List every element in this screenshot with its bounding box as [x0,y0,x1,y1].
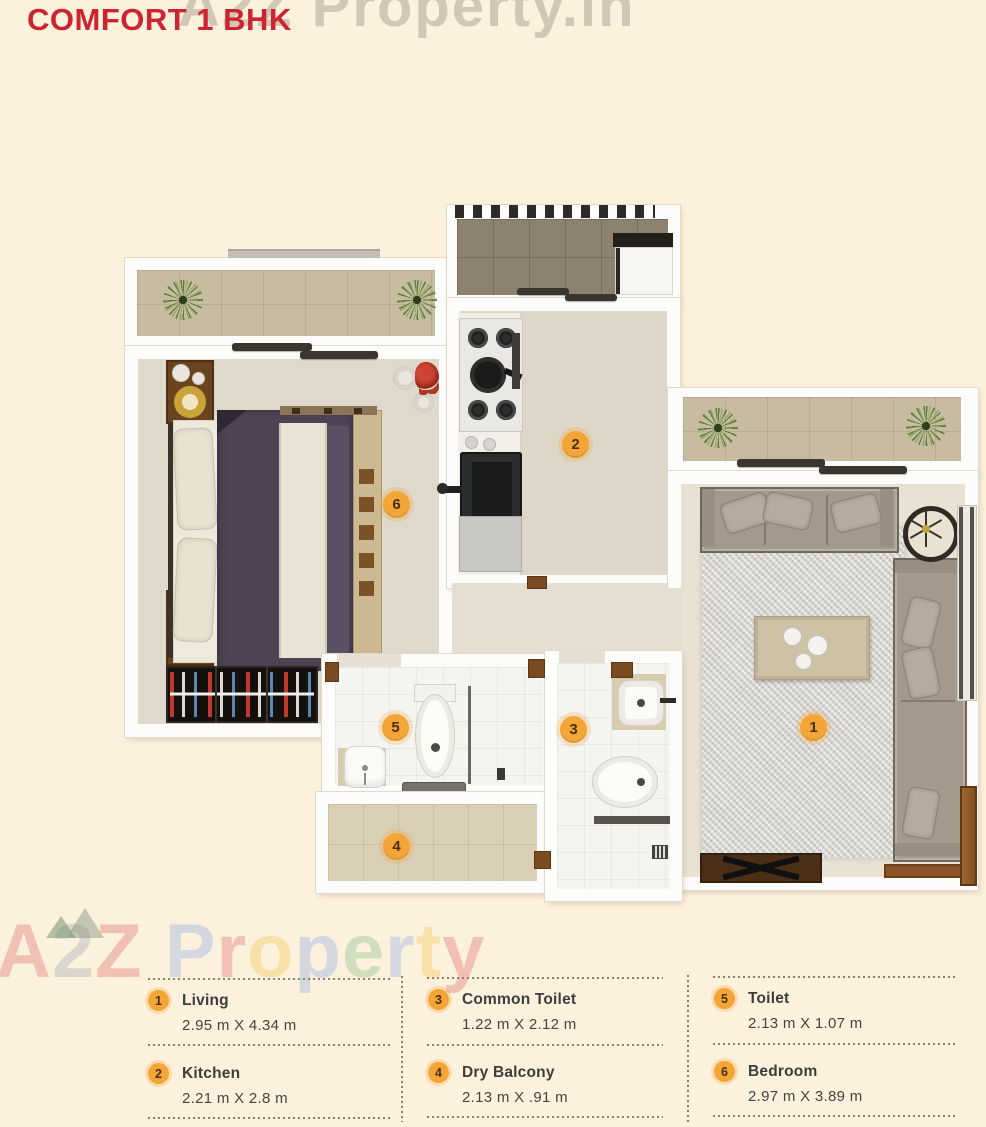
sliding-door [819,466,907,474]
divider [687,975,689,1122]
sliding-door [232,343,312,351]
legend-dims: 2.95 m X 4.34 m [182,1017,297,1034]
legend-item-bedroom: 6 Bedroom 2.97 m X 3.89 m [714,1061,863,1105]
room-marker-toilet: 5 [382,714,409,741]
legend-label: Living [182,990,297,1011]
legend-item-common-toilet: 3 Common Toilet 1.22 m X 2.12 m [428,989,577,1033]
room-marker-common-toilet: 3 [560,716,587,743]
legend-badge: 1 [148,990,169,1011]
divider [427,977,663,979]
sliding-door [737,459,825,467]
legend-badge: 5 [714,988,735,1009]
divider [713,976,958,978]
legend-dims: 2.13 m X .91 m [462,1089,568,1106]
room-marker-bedroom: 6 [383,491,410,518]
divider [427,1044,663,1046]
legend-label: Toilet [748,988,863,1009]
legend-badge: 4 [428,1062,449,1083]
kitchen-window [517,288,569,295]
legend-badge: 2 [148,1063,169,1084]
legend-item-kitchen: 2 Kitchen 2.21 m X 2.8 m [148,1063,288,1107]
legend-label: Common Toilet [462,989,577,1010]
legend-badge: 6 [714,1061,735,1082]
room-marker-dry-balcony: 4 [383,833,410,860]
kitchen-window [565,294,617,301]
door-frame [611,662,633,678]
divider [401,976,403,1122]
room-marker-kitchen: 2 [562,431,589,458]
floorplan-page: A2Z Property.in COMFORT 1 BHK A2Z Proper… [0,0,986,1127]
divider [713,1043,958,1045]
divider [713,1115,958,1117]
sliding-door [300,351,378,359]
legend-label: Bedroom [748,1061,863,1082]
divider [148,1117,390,1119]
legend-item-toilet: 5 Toilet 2.13 m X 1.07 m [714,988,863,1032]
legend: 1 Living 2.95 m X 4.34 m 2 Kitchen 2.21 … [0,0,986,1127]
legend-dims: 2.13 m X 1.07 m [748,1015,863,1032]
legend-dims: 2.97 m X 3.89 m [748,1088,863,1105]
door-frame [528,659,545,678]
divider [148,978,390,980]
divider [427,1116,663,1118]
door-frame [325,662,339,682]
legend-dims: 2.21 m X 2.8 m [182,1090,288,1107]
balcony-lintel [228,249,380,258]
legend-item-living: 1 Living 2.95 m X 4.34 m [148,990,297,1034]
room-marker-living: 1 [800,714,827,741]
legend-label: Dry Balcony [462,1062,568,1083]
legend-badge: 3 [428,989,449,1010]
divider [148,1044,390,1046]
door-frame [527,576,547,589]
legend-label: Kitchen [182,1063,288,1084]
legend-dims: 1.22 m X 2.12 m [462,1016,577,1033]
door-frame [534,851,551,869]
legend-item-dry-balcony: 4 Dry Balcony 2.13 m X .91 m [428,1062,568,1106]
